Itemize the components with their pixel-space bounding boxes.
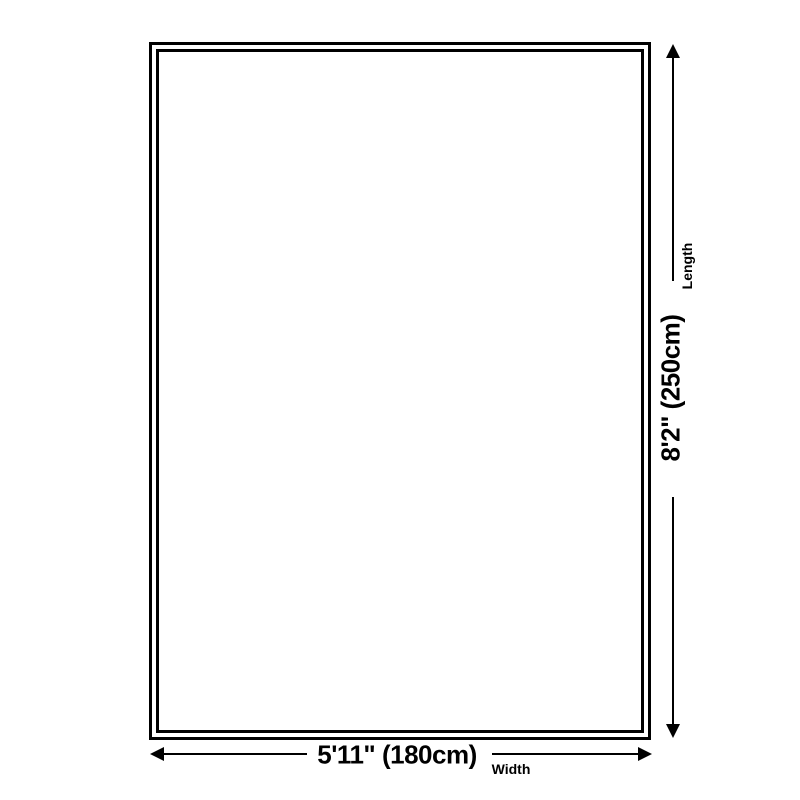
width-axis-label: Width <box>492 761 531 777</box>
rug-outline-outer-border <box>149 42 651 740</box>
width-arrow-line-right <box>492 753 639 755</box>
arrow-up-icon <box>666 44 680 58</box>
arrow-right-icon <box>638 747 652 761</box>
length-axis-label: Length <box>679 243 695 290</box>
arrow-down-icon <box>666 724 680 738</box>
rug-outline-inner-border <box>156 49 644 733</box>
length-dimension-value: 8'2" (250cm) <box>656 315 687 462</box>
width-arrow-line-left <box>163 753 307 755</box>
length-arrow-line-lower <box>672 497 674 725</box>
rug-dimension-diagram: Length 8'2" (250cm) 5'11" (180cm) Width <box>0 0 800 800</box>
arrow-left-icon <box>150 747 164 761</box>
length-arrow-line-upper <box>672 57 674 281</box>
width-dimension-value: 5'11" (180cm) <box>317 740 476 771</box>
